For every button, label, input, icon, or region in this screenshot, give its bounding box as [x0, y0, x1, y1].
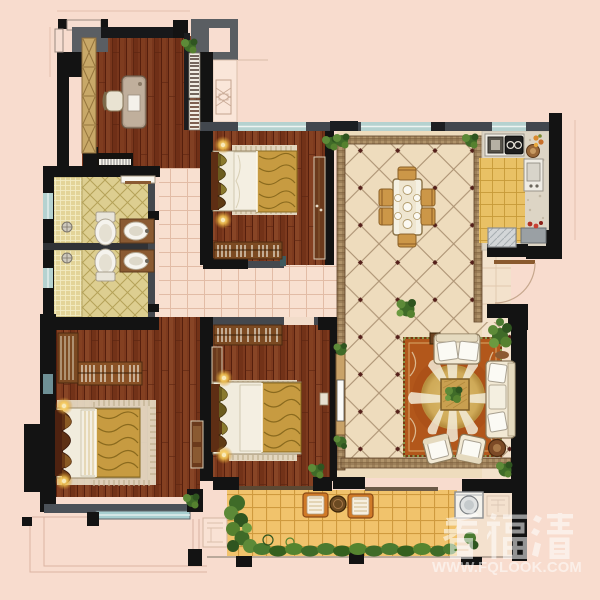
svg-text:WWW.FQLOOK.COM: WWW.FQLOOK.COM	[432, 560, 582, 576]
